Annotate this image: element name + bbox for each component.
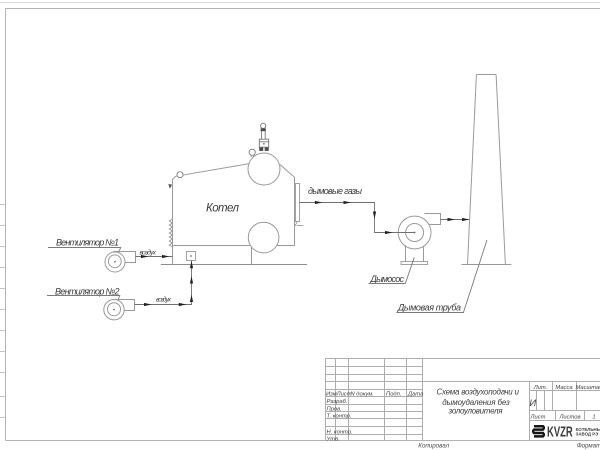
svg-text:Лист: Лист	[336, 391, 352, 397]
svg-text:Лист: Лист	[530, 415, 546, 421]
svg-text:Разраб.: Разраб.	[327, 399, 348, 405]
svg-text:воздух: воздух	[156, 296, 172, 304]
svg-text:Подп.: Подп.	[386, 391, 401, 397]
svg-text:Вентилятор №1: Вентилятор №1	[56, 237, 119, 247]
svg-text:дымовые газы: дымовые газы	[308, 186, 362, 196]
svg-text:Утв.: Утв.	[326, 436, 340, 442]
svg-text:Масштаб: Масштаб	[575, 385, 600, 391]
svg-text:воздух: воздух	[140, 249, 157, 257]
svg-text:Копировал: Копировал	[418, 442, 449, 449]
svg-text:Дымосос: Дымосос	[370, 274, 405, 284]
svg-text:Изм: Изм	[326, 391, 337, 397]
svg-text:Дымовая труба: Дымовая труба	[397, 303, 461, 313]
svg-text:дымоудаления без: дымоудаления без	[442, 398, 510, 407]
svg-text:Лит.: Лит.	[533, 385, 548, 391]
svg-text:Листов: Листов	[558, 415, 580, 421]
svg-text:N докум.: N докум.	[351, 391, 374, 397]
svg-text:Котел: Котел	[206, 203, 240, 215]
svg-text:Дата: Дата	[407, 391, 424, 397]
svg-text:Масса: Масса	[555, 385, 573, 391]
svg-text:Т. контр.: Т. контр.	[327, 413, 352, 419]
svg-text:ЗАВОД РЭ: ЗАВОД РЭ	[576, 431, 599, 436]
svg-text:KVZR: KVZR	[547, 423, 573, 440]
svg-text:И: И	[529, 398, 536, 409]
svg-text:золоуловителя: золоуловителя	[448, 407, 504, 416]
svg-text:Н. контр.: Н. контр.	[327, 430, 353, 436]
svg-text:1: 1	[592, 415, 595, 421]
svg-text:Пров.: Пров.	[327, 406, 342, 412]
svg-text:Схема воздухоподачи и: Схема воздухоподачи и	[436, 388, 519, 397]
svg-text:Формат А4: Формат А4	[577, 442, 600, 449]
